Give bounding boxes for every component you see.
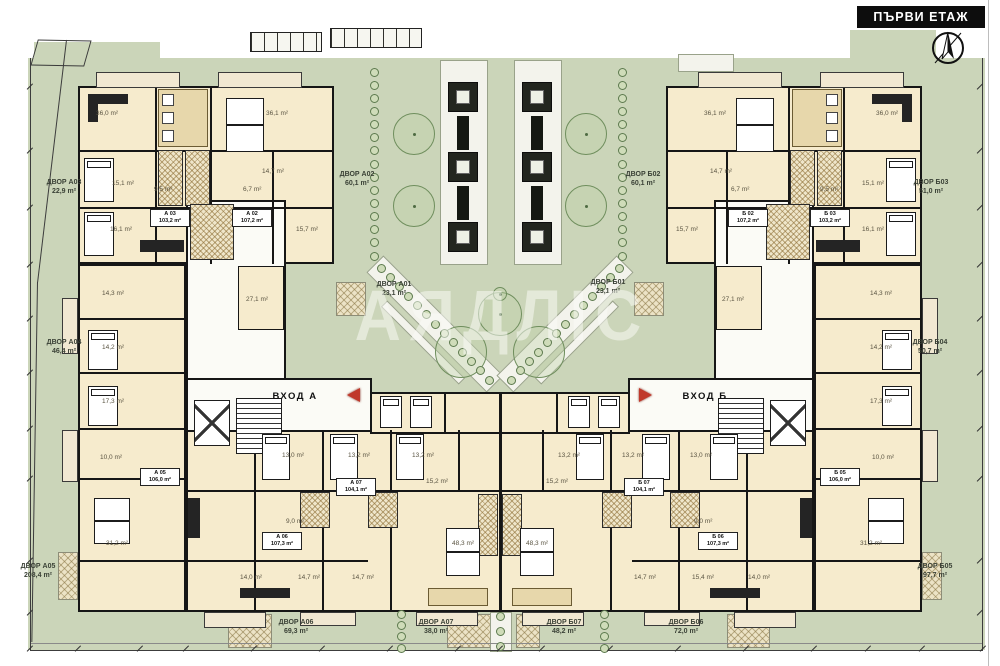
bed — [380, 396, 402, 428]
bench — [457, 116, 469, 150]
hedge — [476, 366, 485, 375]
hedge — [370, 107, 379, 116]
wall — [556, 392, 558, 434]
hedge — [600, 610, 609, 619]
planter — [448, 82, 478, 112]
wall — [78, 372, 186, 374]
furniture — [816, 240, 860, 252]
hedge — [485, 376, 494, 385]
hedge — [370, 81, 379, 90]
yard-label: ДВОР Б0351,0 m² — [896, 178, 966, 196]
yard-label: ДВОР A0738,0 m² — [400, 618, 472, 636]
yard-label: ДВОР Б0672,0 m² — [648, 618, 724, 636]
unit-plate: А 07104,1 m² — [336, 478, 376, 496]
hedge — [570, 310, 579, 319]
room-area-label: 9,5 m² — [154, 186, 172, 193]
yard-label: ДВОР A0446,4 m² — [30, 338, 98, 356]
wall — [155, 86, 157, 264]
hedge — [600, 621, 609, 630]
hedge — [618, 225, 627, 234]
planter — [448, 222, 478, 252]
unit-plate: Б 03103,2 m² — [810, 209, 850, 227]
bathroom-hatch — [190, 204, 234, 260]
hedge — [370, 160, 379, 169]
balcony — [734, 612, 796, 628]
floor-plan: ДВОР A0322,9 m²ДВОР A0260,1 m²ДВОР Б0260… — [0, 0, 1000, 666]
dimension-line — [30, 643, 983, 644]
balcony — [922, 430, 938, 482]
bathroom-hatch — [185, 150, 210, 206]
room-area-label: 36,1 m² — [704, 110, 726, 117]
room-area-label: 13,2 m² — [348, 452, 370, 459]
page-edge — [988, 0, 989, 666]
room-area-label: 17,3 m² — [870, 398, 892, 405]
bench — [457, 186, 469, 220]
balcony — [96, 72, 180, 88]
yard-label: ДВОР A0260,1 m² — [322, 170, 392, 188]
hedge — [618, 94, 627, 103]
bathroom-hatch — [300, 492, 330, 528]
yard-label: ДВОР A0669,3 m² — [258, 618, 334, 636]
hedge — [600, 632, 609, 641]
hedge — [525, 357, 534, 366]
room-area-label: 27,1 m² — [722, 296, 744, 303]
hedge — [618, 107, 627, 116]
hedge — [579, 301, 588, 310]
page-title: ПЪРВИ ЕТАЖ — [873, 10, 968, 24]
hedge — [377, 264, 386, 273]
dining-table — [868, 498, 904, 544]
wall — [78, 428, 186, 430]
tree — [565, 185, 607, 227]
room-area-label: 48,3 m² — [452, 540, 474, 547]
bathroom-hatch — [602, 492, 632, 528]
bench — [531, 116, 543, 150]
hedge — [618, 160, 627, 169]
unit-plate: Б 02107,2 m² — [728, 209, 768, 227]
furniture — [902, 94, 912, 122]
yard-label: ДВОР Б0260,1 m² — [608, 170, 678, 188]
room-area-label: 13,0 m² — [690, 452, 712, 459]
unit-plate: Б 07104,1 m² — [624, 478, 664, 496]
room-area-label: 9,5 m² — [820, 186, 838, 193]
furniture — [188, 498, 200, 538]
room-area-label: 36,1 m² — [266, 110, 288, 117]
wall — [78, 318, 186, 320]
room-area-label: 15,2 m² — [546, 478, 568, 485]
pergola — [250, 32, 322, 52]
balcony — [204, 612, 266, 628]
hedge — [370, 225, 379, 234]
room-area-label: 31,2 m² — [106, 540, 128, 547]
balcony — [218, 72, 302, 88]
hedge — [534, 348, 543, 357]
yard-label: ДВОР Б0597,7 m² — [898, 562, 972, 580]
wall — [542, 430, 544, 490]
bathroom-hatch — [766, 204, 810, 260]
room-area-label: 14,3 m² — [870, 290, 892, 297]
appliance — [826, 130, 838, 142]
planter — [448, 152, 478, 182]
bed — [410, 396, 432, 428]
furniture — [88, 94, 98, 122]
bathroom-hatch — [478, 494, 498, 556]
furniture — [710, 588, 760, 598]
title-bar: ПЪРВИ ЕТАЖ — [857, 6, 985, 28]
kitchen-counter — [512, 588, 572, 606]
hedge — [370, 146, 379, 155]
room-area-label: 14,0 m² — [748, 574, 770, 581]
dining-table — [94, 498, 130, 544]
yard-label: ДВОР Б0748,2 m² — [528, 618, 600, 636]
hedge — [496, 612, 505, 621]
bed — [886, 212, 916, 256]
wall — [632, 560, 814, 562]
room-area-label: 15,1 m² — [862, 180, 884, 187]
wall — [458, 430, 460, 490]
bathroom-hatch — [817, 150, 842, 206]
room-area-label: 16,1 m² — [110, 226, 132, 233]
kitchen-counter — [428, 588, 488, 606]
hedge — [458, 348, 467, 357]
bathroom-hatch — [790, 150, 815, 206]
yard-label: ДВОР A0322,9 m² — [30, 178, 98, 196]
yard-label: ДВОР Б0450,7 m² — [895, 338, 965, 356]
hedge — [422, 310, 431, 319]
room-area-label: 15,7 m² — [676, 226, 698, 233]
room-area-label: 9,0 m² — [694, 518, 712, 525]
room-area-label: 14,2 m² — [102, 344, 124, 351]
dimension-line — [30, 650, 983, 651]
yard-label: ДВОР Б0123,1 m² — [576, 278, 640, 296]
hedge — [618, 199, 627, 208]
yard-label: ДВОР A05208,4 m² — [6, 562, 70, 580]
wall — [843, 86, 845, 264]
unit-plate: Б 06107,3 m² — [698, 532, 738, 550]
hedge — [370, 199, 379, 208]
wall — [186, 560, 368, 562]
room-area-label: 9,0 m² — [286, 518, 304, 525]
room-area-label: 48,3 m² — [526, 540, 548, 547]
balcony — [62, 430, 78, 482]
hedge — [507, 376, 516, 385]
room-area-label: 17,3 m² — [102, 398, 124, 405]
room-area-label: 6,7 m² — [731, 186, 749, 193]
unit-plate: А 02107,2 m² — [232, 209, 272, 227]
hedge — [370, 68, 379, 77]
room-area-label: 10,0 m² — [100, 454, 122, 461]
hedge — [552, 329, 561, 338]
bathroom-hatch — [502, 494, 522, 556]
wall — [814, 372, 922, 374]
hedge — [618, 81, 627, 90]
dining-table — [520, 528, 554, 576]
room-area-label: 10,0 m² — [872, 454, 894, 461]
bed — [568, 396, 590, 428]
entrance-b-label: ВХОД Б — [660, 391, 750, 402]
balcony — [698, 72, 782, 88]
hedge — [370, 212, 379, 221]
room-area-label: 14,7 m² — [634, 574, 656, 581]
wall — [78, 560, 186, 562]
balcony — [820, 72, 904, 88]
appliance — [162, 94, 174, 106]
dining-table — [446, 528, 480, 576]
bed — [598, 396, 620, 428]
hedge — [618, 238, 627, 247]
room-area-label: 31,2 m² — [860, 540, 882, 547]
appliance — [162, 130, 174, 142]
hedge — [496, 627, 505, 636]
unit-plate: А 06107,3 m² — [262, 532, 302, 550]
walkway — [678, 54, 734, 72]
appliance — [826, 112, 838, 124]
room-area-label: 16,1 m² — [862, 226, 884, 233]
room-area-label: 14,7 m² — [298, 574, 320, 581]
hedge — [370, 252, 379, 261]
room-area-label: 27,1 m² — [246, 296, 268, 303]
hedge — [618, 133, 627, 142]
hedge — [561, 320, 570, 329]
bed — [84, 212, 114, 256]
unit-plate: А 03103,2 m² — [150, 209, 190, 227]
hedge — [397, 644, 406, 653]
planter — [522, 152, 552, 182]
bed — [576, 434, 604, 480]
yard-label: ДВОР A0123,1 m² — [362, 280, 426, 298]
room-area-label: 14,7 m² — [710, 168, 732, 175]
planter — [522, 82, 552, 112]
wall — [746, 430, 748, 612]
bathroom-hatch — [368, 492, 398, 528]
room-area-label: 14,7 m² — [262, 168, 284, 175]
bed — [710, 434, 738, 480]
tree — [393, 113, 435, 155]
hedge — [618, 120, 627, 129]
bed — [882, 386, 912, 426]
hedge — [370, 120, 379, 129]
hedge — [618, 252, 627, 261]
room-area-label: 13,2 m² — [558, 452, 580, 459]
room-area-label: 13,2 m² — [622, 452, 644, 459]
hedge — [449, 338, 458, 347]
wall — [186, 490, 814, 492]
room-area-label: 15,2 m² — [426, 478, 448, 485]
appliance — [162, 112, 174, 124]
hedge — [467, 357, 476, 366]
planter — [522, 222, 552, 252]
lawn — [850, 30, 936, 58]
wall — [814, 318, 922, 320]
room-area-label: 14,0 m² — [240, 574, 262, 581]
furniture — [240, 588, 290, 598]
hedge — [618, 212, 627, 221]
room-area-label: 15,4 m² — [692, 574, 714, 581]
dining-table — [736, 98, 774, 152]
hedge — [431, 320, 440, 329]
hedge — [370, 133, 379, 142]
entrance-a-label: ВХОД А — [250, 391, 340, 402]
hedge — [618, 146, 627, 155]
room-area-label: 13,0 m² — [282, 452, 304, 459]
furniture — [140, 240, 184, 252]
room-area-label: 15,7 m² — [296, 226, 318, 233]
north-arrow-icon — [928, 28, 968, 68]
site-structure — [30, 40, 91, 67]
room-area-label: 36,0 m² — [876, 110, 898, 117]
furniture — [800, 498, 812, 538]
room-area-label: 14,2 m² — [870, 344, 892, 351]
hedge — [440, 329, 449, 338]
wall — [254, 430, 256, 612]
entrance-b-arrow-icon — [639, 388, 652, 402]
bed — [642, 434, 670, 480]
tree — [565, 113, 607, 155]
room-area-label: 36,0 m² — [96, 110, 118, 117]
tree — [493, 287, 507, 301]
appliance — [826, 94, 838, 106]
hedge — [370, 238, 379, 247]
wall — [444, 392, 446, 434]
pergola — [330, 28, 422, 48]
unit-plate: Б 05106,0 m² — [820, 468, 860, 486]
hedge — [615, 264, 624, 273]
room-area-label: 15,1 m² — [112, 180, 134, 187]
bathroom-hatch — [158, 150, 183, 206]
room-area-label: 14,3 m² — [102, 290, 124, 297]
bed — [88, 386, 118, 426]
entrance-a-arrow-icon — [347, 388, 360, 402]
tree — [393, 185, 435, 227]
hedge — [543, 338, 552, 347]
hedge — [618, 68, 627, 77]
hedge — [516, 366, 525, 375]
bench — [531, 186, 543, 220]
room-area-label: 14,7 m² — [352, 574, 374, 581]
wall — [814, 428, 922, 430]
room-area-label: 13,2 m² — [412, 452, 434, 459]
dining-table — [226, 98, 264, 152]
unit-plate: А 05106,0 m² — [140, 468, 180, 486]
elevator-icon — [194, 400, 230, 446]
elevator-icon — [770, 400, 806, 446]
room-area-label: 6,7 m² — [243, 186, 261, 193]
hedge — [370, 94, 379, 103]
hedge — [413, 301, 422, 310]
